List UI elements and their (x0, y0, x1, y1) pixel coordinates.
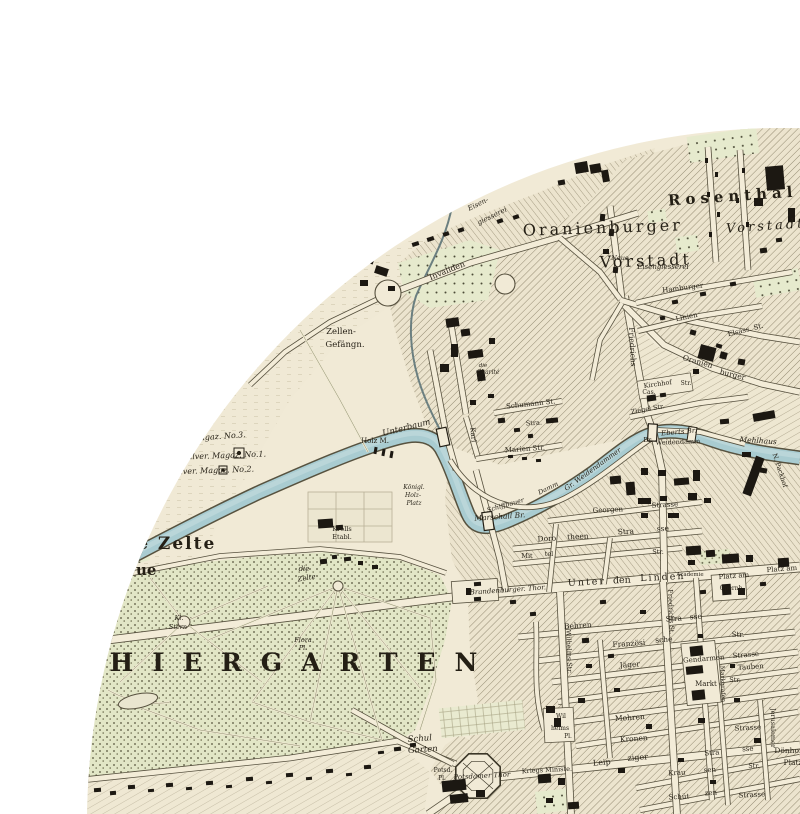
building (698, 634, 703, 638)
map-label-pl: Pl. (438, 775, 446, 782)
building (110, 791, 116, 795)
map-label-jerusalemer: Jerusalemer (769, 707, 777, 749)
map-label-zellen: Zellen- (326, 327, 356, 337)
building (530, 612, 536, 616)
building (688, 493, 697, 500)
map-label-tel: tel (545, 550, 554, 558)
map-label-zen: zen (705, 789, 718, 798)
building (206, 781, 213, 785)
map-label-markgrafen: Markgrafen (718, 666, 726, 703)
map-label-potsd: Potsd. (434, 767, 453, 774)
map-label-weidendamm: Weidendamm (655, 437, 700, 447)
building (660, 316, 666, 321)
building (346, 773, 352, 776)
map-label-karl: Karl (468, 427, 477, 443)
map-label-str: Str. (748, 762, 760, 770)
map-label-platz: Platz (405, 500, 422, 507)
map-label-wil: Wil (556, 713, 566, 720)
building (610, 476, 622, 485)
building (470, 400, 476, 405)
map-label-str: Str. (732, 631, 744, 639)
map-label-sse: sse (742, 745, 754, 754)
building (730, 664, 735, 668)
map-label-stra: Stra (618, 527, 635, 537)
map-label-unter: Unter (568, 576, 607, 589)
map-label-kl: Kl. (173, 614, 183, 622)
building (498, 418, 505, 424)
map-label-sse: sse (657, 524, 670, 534)
map-canvas: RosenthalVorstadtOranienburgerVorstadtNe… (0, 0, 800, 814)
building (510, 600, 516, 604)
map-label-br: Br. (643, 436, 652, 444)
map-label-stra: Stra (704, 748, 720, 757)
building (668, 513, 679, 518)
map-label-strasse: Strasse (738, 790, 765, 799)
map-label-cas: Cas. (642, 389, 655, 396)
map-label-holz-m: Holz M. (361, 437, 389, 445)
map-label-j-ger: Jäger (618, 659, 640, 669)
building (589, 163, 601, 174)
map-label-str: Str. (681, 380, 692, 387)
building (776, 238, 782, 243)
building (522, 457, 527, 460)
map-label-sch-t: Schüt (668, 792, 689, 801)
page: RosenthalVorstadtOranienburgerVorstadtNe… (0, 0, 800, 814)
map-label-ziger: ziger (627, 752, 648, 763)
map-label-academie: Academie (675, 572, 703, 578)
building (546, 798, 553, 803)
map-label-stra: Stra. (526, 418, 543, 427)
building (734, 698, 740, 702)
building (640, 610, 646, 614)
building (693, 470, 700, 481)
building (760, 582, 766, 586)
building (582, 638, 589, 643)
building (686, 545, 702, 555)
building (388, 286, 395, 291)
building (461, 328, 471, 336)
map-label-garten: Garten (408, 744, 438, 756)
building (326, 769, 333, 773)
building (614, 688, 620, 692)
building (445, 317, 459, 328)
building (568, 802, 579, 810)
building (514, 428, 520, 433)
building (608, 654, 614, 658)
building (625, 482, 635, 496)
map-label-wilhelms-str: Wilhelms Str. (564, 630, 574, 674)
building (489, 338, 495, 344)
map-label-krolls: Krolls (332, 525, 351, 533)
invaliden-plaza (375, 280, 401, 306)
building (450, 793, 469, 804)
building (394, 747, 401, 752)
map-label-platz: Platz (784, 758, 800, 767)
building (717, 212, 720, 217)
building (698, 718, 705, 723)
building (660, 393, 666, 398)
map-label-pl: Pl. (298, 644, 308, 652)
building (546, 706, 555, 713)
building (488, 394, 494, 398)
building (742, 452, 751, 457)
building (128, 785, 135, 789)
map-label-etabl: Etabl. (332, 533, 352, 541)
building (678, 758, 684, 762)
map-label-sche: sche (655, 634, 673, 644)
building (746, 555, 753, 562)
building (709, 232, 712, 237)
building (318, 518, 334, 528)
building (476, 790, 485, 797)
map-label-markt: Markt (695, 680, 717, 688)
building (710, 780, 716, 784)
building (738, 358, 746, 365)
map-label-k-nigl: Königl. (402, 484, 424, 491)
map-label-eisengiesserei: Eisengiesserei (636, 263, 689, 271)
map-label-str: Str. (729, 676, 741, 684)
map-label-flora: Flora (293, 636, 312, 644)
map-label-pl: Pl. (564, 733, 572, 740)
building (704, 498, 711, 503)
map-label-theen: theen (567, 531, 589, 541)
map-label-strasse: Strasse (651, 500, 678, 509)
map-label-neue: Neue (610, 254, 629, 262)
building (658, 470, 666, 476)
building (705, 158, 708, 163)
map-label-ue: ue (136, 561, 156, 579)
map-label-holz: Holz- (404, 492, 421, 499)
building (722, 553, 740, 563)
building (574, 161, 589, 174)
map-label-georgen: Georgen (592, 505, 623, 515)
building (226, 785, 232, 788)
building (638, 498, 651, 504)
building (586, 664, 592, 668)
building (266, 781, 272, 784)
map-label-opernh: Opernh. (720, 585, 745, 592)
building (148, 789, 154, 792)
building (474, 582, 481, 586)
building (720, 419, 729, 425)
building (166, 783, 173, 787)
map-label-krau: Krau (668, 769, 686, 778)
building (360, 280, 368, 286)
map-label-stern: Stern (169, 623, 187, 631)
building (372, 565, 378, 569)
building (536, 459, 541, 462)
building (94, 788, 101, 792)
building (332, 555, 337, 560)
map-label-helms: helms (551, 725, 569, 732)
building (286, 773, 293, 777)
building (474, 597, 481, 601)
building (693, 369, 699, 374)
map-surface: RosenthalVorstadtOranienburgerVorstadtNe… (0, 0, 800, 814)
building (742, 168, 745, 173)
building (641, 468, 648, 475)
building (578, 698, 585, 703)
building (674, 477, 690, 485)
building (558, 778, 565, 785)
building (186, 787, 192, 790)
building (364, 765, 371, 769)
building (508, 455, 513, 458)
building (306, 777, 312, 780)
building (618, 768, 625, 773)
building (538, 774, 552, 784)
building (754, 738, 761, 743)
map-label-den: den (613, 575, 631, 587)
building (378, 751, 384, 755)
neues-thor-plaza (495, 274, 515, 294)
map-label-thiergarten: THIERGARTEN (72, 648, 496, 677)
map-label-strasse: Strasse (734, 723, 761, 732)
building (246, 777, 253, 781)
map-label-doro: Doro (537, 533, 557, 543)
zelte-junction (333, 581, 343, 591)
building (715, 172, 718, 177)
map-label-gef-ngn: Gefängn. (325, 340, 364, 350)
map-label-d-nhofs: Dönhofs (774, 746, 800, 755)
building (344, 557, 351, 562)
building (440, 364, 449, 372)
building (706, 550, 715, 558)
map-label-charit: Charité (477, 369, 500, 376)
map-label-schul: Schul (407, 733, 432, 745)
map-label-sen: sen (704, 766, 717, 775)
map-label-die: die (299, 565, 310, 573)
building (700, 590, 706, 594)
building (451, 344, 458, 357)
building (528, 434, 533, 439)
building (692, 689, 706, 700)
building (760, 248, 768, 254)
map-label-leip: Leip (593, 757, 611, 768)
building (688, 560, 695, 565)
map-label-die-zelte: Die Zelte (112, 534, 216, 554)
building (320, 559, 327, 565)
building (362, 254, 375, 264)
building (358, 561, 363, 565)
map-label-mit: Mit (521, 552, 533, 560)
map-label-friedrichs-st: Friedrichs St. (666, 589, 676, 635)
building (641, 513, 648, 518)
building (600, 600, 606, 604)
building (646, 724, 652, 729)
map-label-str: Str. (652, 548, 664, 556)
map-label-sse: sse (689, 612, 702, 622)
